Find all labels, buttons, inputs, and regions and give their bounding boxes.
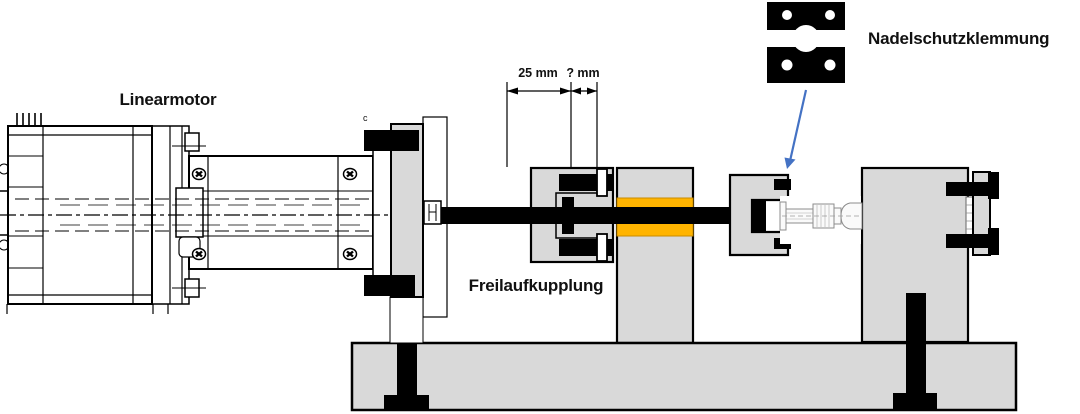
corner-mark: c [363, 113, 368, 123]
label-dim-25mm: 25 mm [518, 66, 558, 80]
plate-pedestal [390, 297, 423, 343]
dim-arrowhead-icon [507, 88, 518, 95]
motor-top-tab [185, 133, 199, 151]
needle-instrument [780, 196, 862, 244]
screw-icon [344, 249, 357, 260]
clamp-bar-bottom [364, 275, 415, 296]
label-nadelschutzklemmung: Nadelschutzklemmung [868, 29, 1049, 48]
shaft [441, 207, 766, 224]
plate-hole [782, 10, 792, 20]
screw-icon [344, 169, 357, 180]
dimension-annotation [507, 82, 597, 167]
support-post-left-foot [384, 395, 429, 410]
bracket-bolt-top [946, 182, 998, 196]
pointer-arrow [785, 90, 807, 169]
clutch-bolt-top-head [597, 169, 607, 196]
plate-hole [825, 10, 835, 20]
center-support-column [617, 168, 693, 343]
label-dim-unknown: ? mm [566, 66, 599, 80]
motor-face-plate [373, 140, 391, 292]
clamp-tab-top [774, 179, 791, 190]
shaft-end-cap [753, 200, 766, 232]
dim-arrowhead-icon [571, 88, 581, 95]
plate-hole [782, 60, 793, 71]
screw-icon [193, 169, 206, 180]
support-post-right-foot [893, 393, 937, 410]
label-freilaufkupplung: Freilaufkupplung [469, 276, 604, 295]
clamp-bar-top [364, 130, 419, 151]
plate-hole [825, 60, 836, 71]
shaft-collar [176, 188, 203, 237]
pointer-arrow-line [790, 90, 806, 161]
base-assembly [352, 168, 1016, 410]
shaft-t-flange [562, 197, 574, 234]
motor-rear-stub [0, 191, 8, 235]
clutch-bolt-bottom-head [597, 234, 607, 261]
diagram-canvas: c [0, 0, 1080, 414]
motor-connector-pins [17, 113, 41, 126]
bracket-bolt-bottom [946, 234, 998, 248]
dim-arrowhead-icon [587, 88, 597, 95]
support-post-right [906, 293, 926, 393]
motor-feet-ticks [7, 304, 168, 314]
needle-protection-plate-icon [767, 2, 845, 83]
extension-lines [507, 82, 597, 167]
plate-center-hole [793, 25, 820, 52]
pointer-arrowhead-icon [785, 158, 796, 170]
dim-arrowhead-icon [560, 88, 571, 95]
screw-icon [193, 249, 206, 260]
test-rig-diagram: c [0, 0, 1080, 414]
label-linearmotor: Linearmotor [120, 90, 218, 109]
